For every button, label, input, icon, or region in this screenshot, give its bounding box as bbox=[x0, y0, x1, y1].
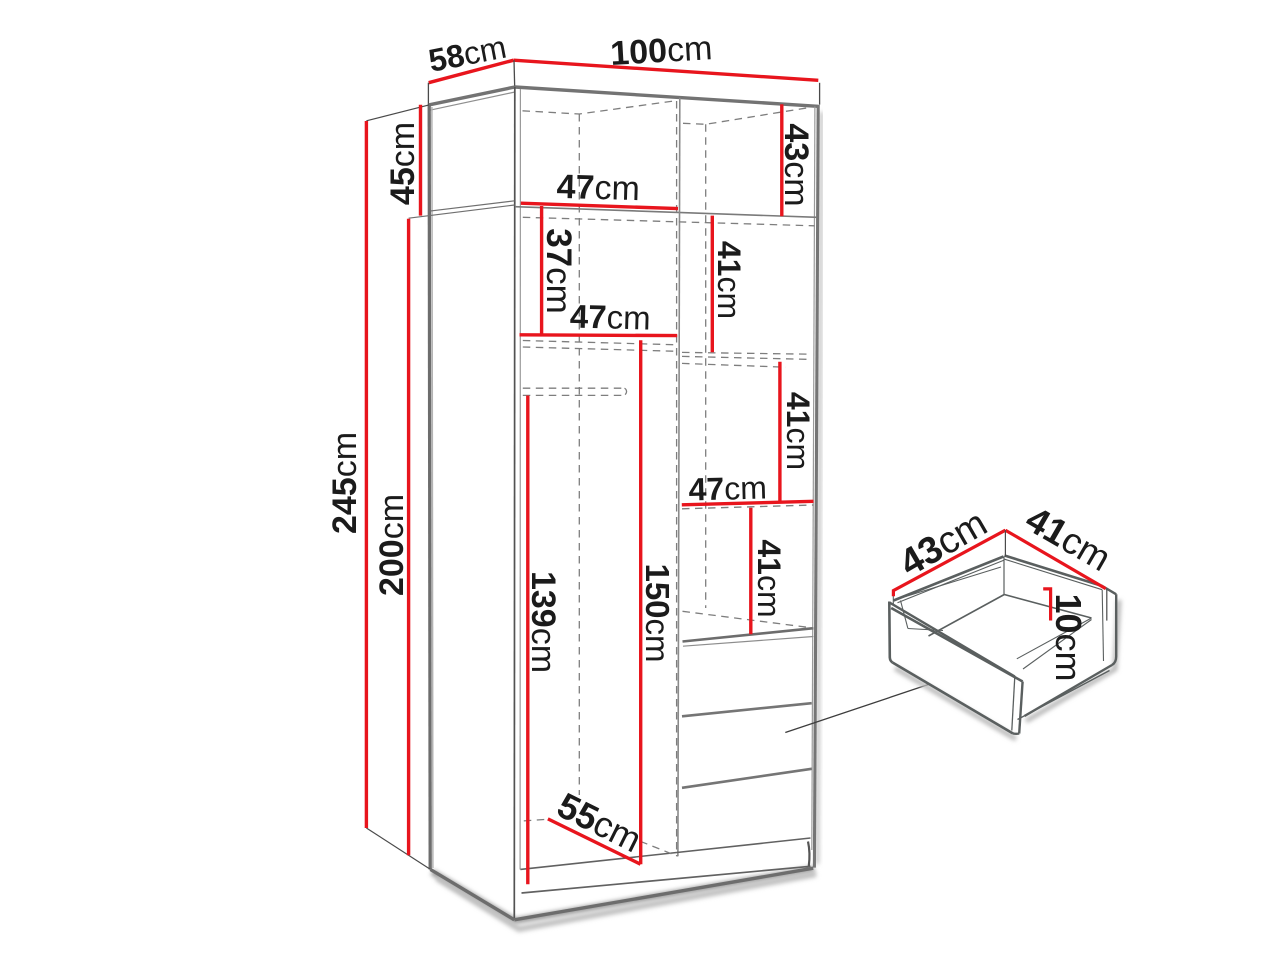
svg-text:245cm: 245cm bbox=[326, 432, 364, 534]
svg-text:47cm: 47cm bbox=[569, 297, 651, 336]
svg-text:139cm: 139cm bbox=[524, 571, 562, 673]
svg-text:10cm: 10cm bbox=[1048, 593, 1089, 681]
svg-text:41cm: 41cm bbox=[751, 539, 787, 617]
svg-text:41cm: 41cm bbox=[711, 241, 747, 319]
svg-text:41cm: 41cm bbox=[780, 392, 816, 470]
svg-text:47cm: 47cm bbox=[688, 469, 767, 507]
svg-text:150cm: 150cm bbox=[639, 563, 676, 662]
svg-text:100cm: 100cm bbox=[609, 29, 713, 73]
svg-text:43cm: 43cm bbox=[777, 123, 815, 206]
svg-text:45cm: 45cm bbox=[384, 122, 422, 205]
svg-text:47cm: 47cm bbox=[556, 168, 640, 208]
svg-text:200cm: 200cm bbox=[373, 494, 411, 596]
